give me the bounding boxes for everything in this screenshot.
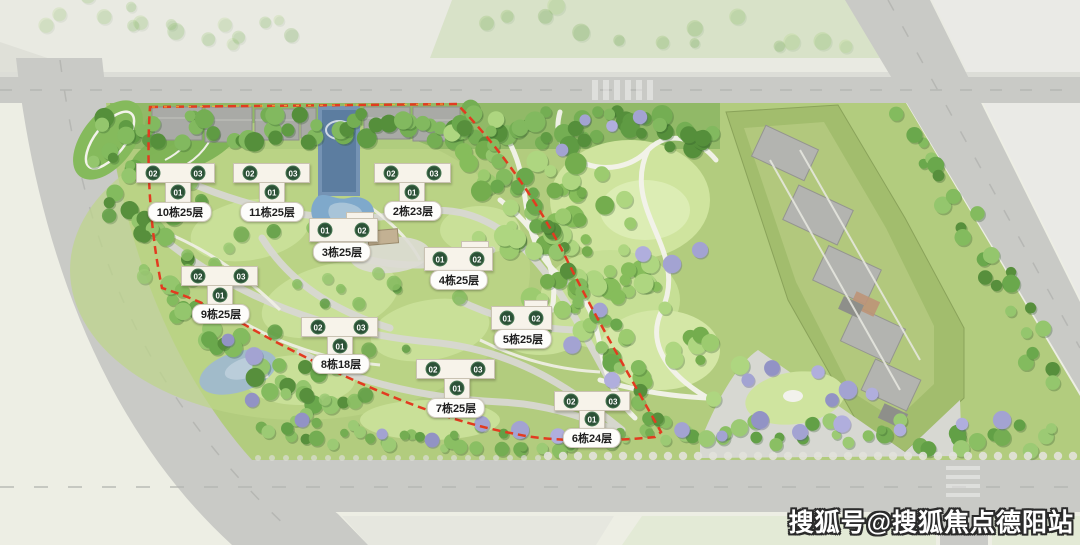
unit-badge: 01 (265, 185, 280, 200)
unit-badge: 01 (433, 252, 448, 267)
building-footprint (461, 241, 490, 248)
unit-badge: 03 (286, 166, 301, 181)
unit-badge: 01 (450, 381, 465, 396)
watermark: 搜狐号@搜狐焦点德阳站 (789, 503, 1074, 539)
building-label: 2栋23层 (384, 201, 442, 221)
building-footprint (524, 300, 549, 307)
unit-badge: 02 (355, 223, 370, 238)
unit-badge: 01 (405, 185, 420, 200)
unit-badge: 02 (146, 166, 161, 181)
unit-badge: 03 (427, 166, 442, 181)
unit-badge: 02 (243, 166, 258, 181)
unit-badge: 02 (384, 166, 399, 181)
unit-badge: 01 (213, 288, 228, 303)
unit-badge: 02 (470, 252, 485, 267)
unit-badge: 02 (191, 269, 206, 284)
building-label: 6栋24层 (563, 428, 621, 448)
unit-badge: 01 (333, 339, 348, 354)
unit-badge: 03 (191, 166, 206, 181)
building-label: 3栋25层 (313, 242, 371, 262)
unit-badge: 01 (318, 223, 333, 238)
unit-badge: 01 (585, 412, 600, 427)
unit-badge: 02 (426, 362, 441, 377)
unit-badge: 02 (529, 311, 544, 326)
building-footprint (346, 212, 375, 219)
unit-badge: 01 (500, 311, 515, 326)
unit-badge: 03 (234, 269, 249, 284)
unit-badge: 03 (354, 320, 369, 335)
building-label: 10栋25层 (148, 202, 212, 222)
unit-badge: 02 (564, 394, 579, 409)
site-plan: 02030110栋25层02030111栋25层0203012栋23层01023… (0, 0, 1080, 545)
unit-badge: 01 (171, 185, 186, 200)
buildings-layer: 02030110栋25层02030111栋25层0203012栋23层01023… (0, 0, 1080, 545)
building-label: 7栋25层 (427, 398, 485, 418)
building-label: 8栋18层 (312, 354, 370, 374)
building-label: 5栋25层 (494, 329, 552, 349)
unit-badge: 03 (471, 362, 486, 377)
building-label: 11栋25层 (240, 202, 304, 222)
unit-badge: 02 (311, 320, 326, 335)
unit-badge: 03 (606, 394, 621, 409)
building-label: 4栋25层 (430, 270, 488, 290)
building-label: 9栋25层 (192, 304, 250, 324)
